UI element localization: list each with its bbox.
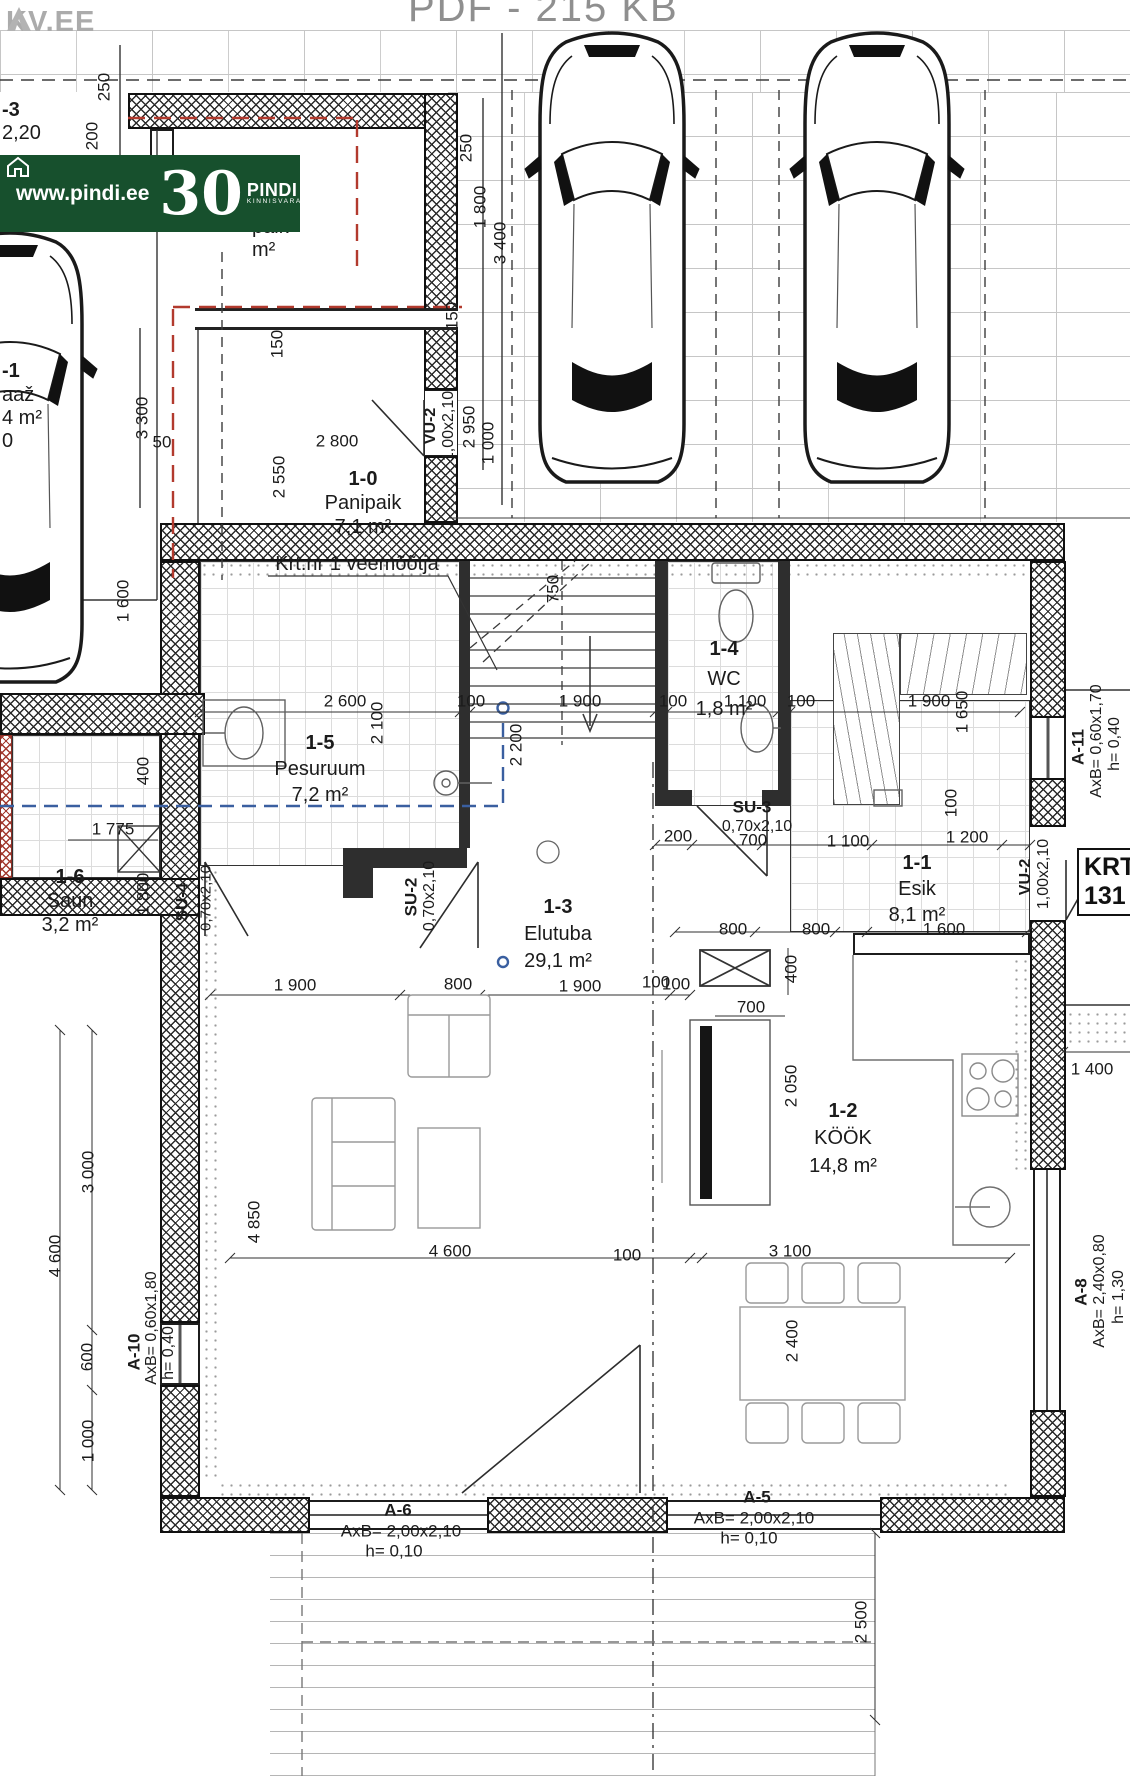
dim-label: 1 600 bbox=[115, 580, 132, 623]
dim-label: 150 bbox=[269, 330, 286, 358]
room-code: 1-0 bbox=[349, 469, 378, 489]
window-size: AxB= 2,40x0,80 bbox=[1092, 1234, 1108, 1347]
dim-label: 100 bbox=[613, 1247, 641, 1264]
room-area: 29,1 m² bbox=[524, 951, 592, 971]
room-name: WC bbox=[707, 669, 740, 689]
dim-label: 750 bbox=[545, 575, 562, 603]
banner-url: www.pindi.ee bbox=[16, 182, 149, 206]
door-size: 1,00x2,10 bbox=[1036, 839, 1052, 909]
dim-label: 150 bbox=[444, 302, 461, 330]
dim-label: 1 000 bbox=[480, 422, 497, 465]
dim-label: 2 950 bbox=[461, 406, 478, 449]
dim-label: 4 850 bbox=[246, 1201, 263, 1244]
dim-label: 1 400 bbox=[1071, 1061, 1114, 1078]
kv-logo-icon bbox=[6, 6, 32, 32]
dim-label: 1 600 bbox=[923, 921, 966, 938]
room-name: Elutuba bbox=[524, 924, 592, 944]
dim-label: 400 bbox=[783, 955, 800, 983]
window-height: h= 1,30 bbox=[1111, 1270, 1127, 1324]
door-label: A-6 bbox=[384, 1502, 411, 1519]
dim-label: 3 000 bbox=[80, 1151, 97, 1194]
krt-number-box: KRT 131 bbox=[1077, 848, 1130, 916]
dim-label: 100 bbox=[662, 976, 690, 993]
room-name: Pesuruum bbox=[274, 759, 365, 779]
dim-label: 2 550 bbox=[271, 456, 288, 499]
dim-label: 50 bbox=[153, 434, 172, 451]
dim-label: 1 900 bbox=[559, 978, 602, 995]
door-size: AxB= 2,00x2,10 bbox=[694, 1510, 815, 1527]
banner-brand-sub: KINNISVARA bbox=[247, 199, 302, 206]
window-size: AxB= 0,60x1,80 bbox=[144, 1271, 160, 1384]
dim-label: 2 200 bbox=[508, 724, 525, 767]
fragment-storage-area: m² bbox=[252, 240, 275, 260]
dim-label: 2 400 bbox=[784, 1320, 801, 1363]
dim-label: 800 bbox=[444, 976, 472, 993]
banner-brand: PINDI KINNISVARA bbox=[247, 181, 302, 206]
dim-label: 2 600 bbox=[324, 693, 367, 710]
window-label: A-10 bbox=[126, 1334, 143, 1371]
kv-logo: KV.EE bbox=[6, 6, 95, 39]
dim-label: 3 100 bbox=[769, 1243, 812, 1260]
banner-years: 30 bbox=[159, 167, 243, 221]
dim-label: 700 bbox=[739, 832, 767, 849]
window-label: A-11 bbox=[1070, 729, 1087, 765]
dim-label: 250 bbox=[458, 134, 475, 162]
dim-label: 1 100 bbox=[827, 833, 870, 850]
dim-label: 1 650 bbox=[954, 691, 971, 734]
window-height: h= 0,40 bbox=[161, 1326, 177, 1380]
dim-label: 1 000 bbox=[80, 1420, 97, 1463]
window-height: h= 0,40 bbox=[1107, 717, 1123, 771]
door-label: A-5 bbox=[743, 1489, 770, 1506]
dim-label: 700 bbox=[737, 999, 765, 1016]
dim-label: 100 bbox=[787, 693, 815, 710]
door-label: VU-2 bbox=[1018, 859, 1034, 895]
dim-label: 1 900 bbox=[274, 977, 317, 994]
dim-label: 2 500 bbox=[853, 1601, 870, 1644]
room-code: 1-3 bbox=[544, 897, 573, 917]
room-code: 1-1 bbox=[903, 853, 932, 873]
room-name: Panipaik bbox=[325, 493, 402, 513]
pdf-file-info: PDF - 215 KB bbox=[408, 0, 679, 31]
banner-brand-name: PINDI bbox=[247, 181, 302, 199]
floorplan-page: { "header": { "file_info": "PDF - 215 KB… bbox=[0, 0, 1130, 1776]
door-label: SU-3 bbox=[733, 799, 772, 816]
door-label: SU-2 bbox=[403, 878, 420, 917]
krt-line2: 131 bbox=[1084, 882, 1130, 911]
house-icon bbox=[5, 155, 31, 179]
dim-label: 600 bbox=[79, 1343, 96, 1371]
plan-linework bbox=[0, 0, 1130, 1776]
room-code: 1-2 bbox=[829, 1101, 858, 1121]
door-size: AxB= 2,00x2,10 bbox=[341, 1523, 462, 1540]
door-height: h= 0,10 bbox=[720, 1530, 777, 1547]
room-code: 1-5 bbox=[306, 733, 335, 753]
water-meter-note: Krt.nr 1 veemõõtja bbox=[275, 554, 438, 574]
door-label: SU-4 bbox=[174, 883, 191, 922]
dim-label: 800 bbox=[719, 921, 747, 938]
dim-label: 1 100 bbox=[724, 693, 767, 710]
dim-label: 2 800 bbox=[316, 433, 359, 450]
door-size: 0,70x2,10 bbox=[199, 865, 214, 931]
dim-label: 200 bbox=[664, 828, 692, 845]
fragment-garage-code: -1 bbox=[2, 361, 20, 381]
room-area: 7,2 m² bbox=[292, 785, 349, 805]
dim-label: 800 bbox=[802, 921, 830, 938]
door-size: 0,70x2,10 bbox=[422, 861, 438, 931]
door-label: VU-2 bbox=[423, 408, 439, 444]
dim-label: 2 100 bbox=[369, 702, 386, 745]
dim-label: 2 050 bbox=[783, 1065, 800, 1108]
dim-label: 1 200 bbox=[946, 829, 989, 846]
door-size: 1,00x2,10 bbox=[441, 391, 457, 461]
dim-label: 4 600 bbox=[47, 1235, 64, 1278]
fragment-garage-name: aaž bbox=[2, 385, 34, 405]
dim-label: 1 775 bbox=[92, 821, 135, 838]
room-code: 1-4 bbox=[710, 639, 739, 659]
dim-label: 100 bbox=[457, 693, 485, 710]
room-name: KÖÖK bbox=[814, 1128, 872, 1148]
dim-label: 1 900 bbox=[908, 693, 951, 710]
dim-label: 100 bbox=[943, 789, 960, 817]
window-label: A-8 bbox=[1073, 1278, 1090, 1305]
dim-label: 3 300 bbox=[134, 397, 151, 440]
fragment-garage-extra: 0 bbox=[2, 431, 13, 451]
dim-label: 4 600 bbox=[429, 1243, 472, 1260]
fragment-door-size: 2,20 bbox=[2, 123, 41, 143]
dim-label: 400 bbox=[135, 757, 152, 785]
room-name: Saun bbox=[47, 891, 94, 911]
room-area: 3,2 m² bbox=[42, 915, 99, 935]
room-name: Esik bbox=[898, 879, 936, 899]
dim-label: 1 900 bbox=[559, 693, 602, 710]
door-height: h= 0,10 bbox=[365, 1543, 422, 1560]
dim-label: 200 bbox=[84, 122, 101, 150]
dim-label: 1 800 bbox=[472, 186, 489, 229]
fragment-door-code: -3 bbox=[2, 100, 20, 120]
dim-label: 1 800 bbox=[135, 873, 152, 916]
room-area: 14,8 m² bbox=[809, 1156, 877, 1176]
room-code: 1-6 bbox=[56, 867, 85, 887]
fragment-garage-area: 4 m² bbox=[2, 408, 42, 428]
dim-label: 100 bbox=[659, 693, 687, 710]
window-size: AxB= 0,60x1,70 bbox=[1089, 684, 1105, 797]
room-area: 7,1 m² bbox=[335, 517, 392, 537]
krt-line1: KRT bbox=[1084, 853, 1130, 882]
pindi-banner: www.pindi.ee 30 PINDI KINNISVARA bbox=[0, 155, 300, 232]
dim-label: 250 bbox=[96, 73, 113, 101]
dim-label: 3 400 bbox=[492, 222, 509, 265]
